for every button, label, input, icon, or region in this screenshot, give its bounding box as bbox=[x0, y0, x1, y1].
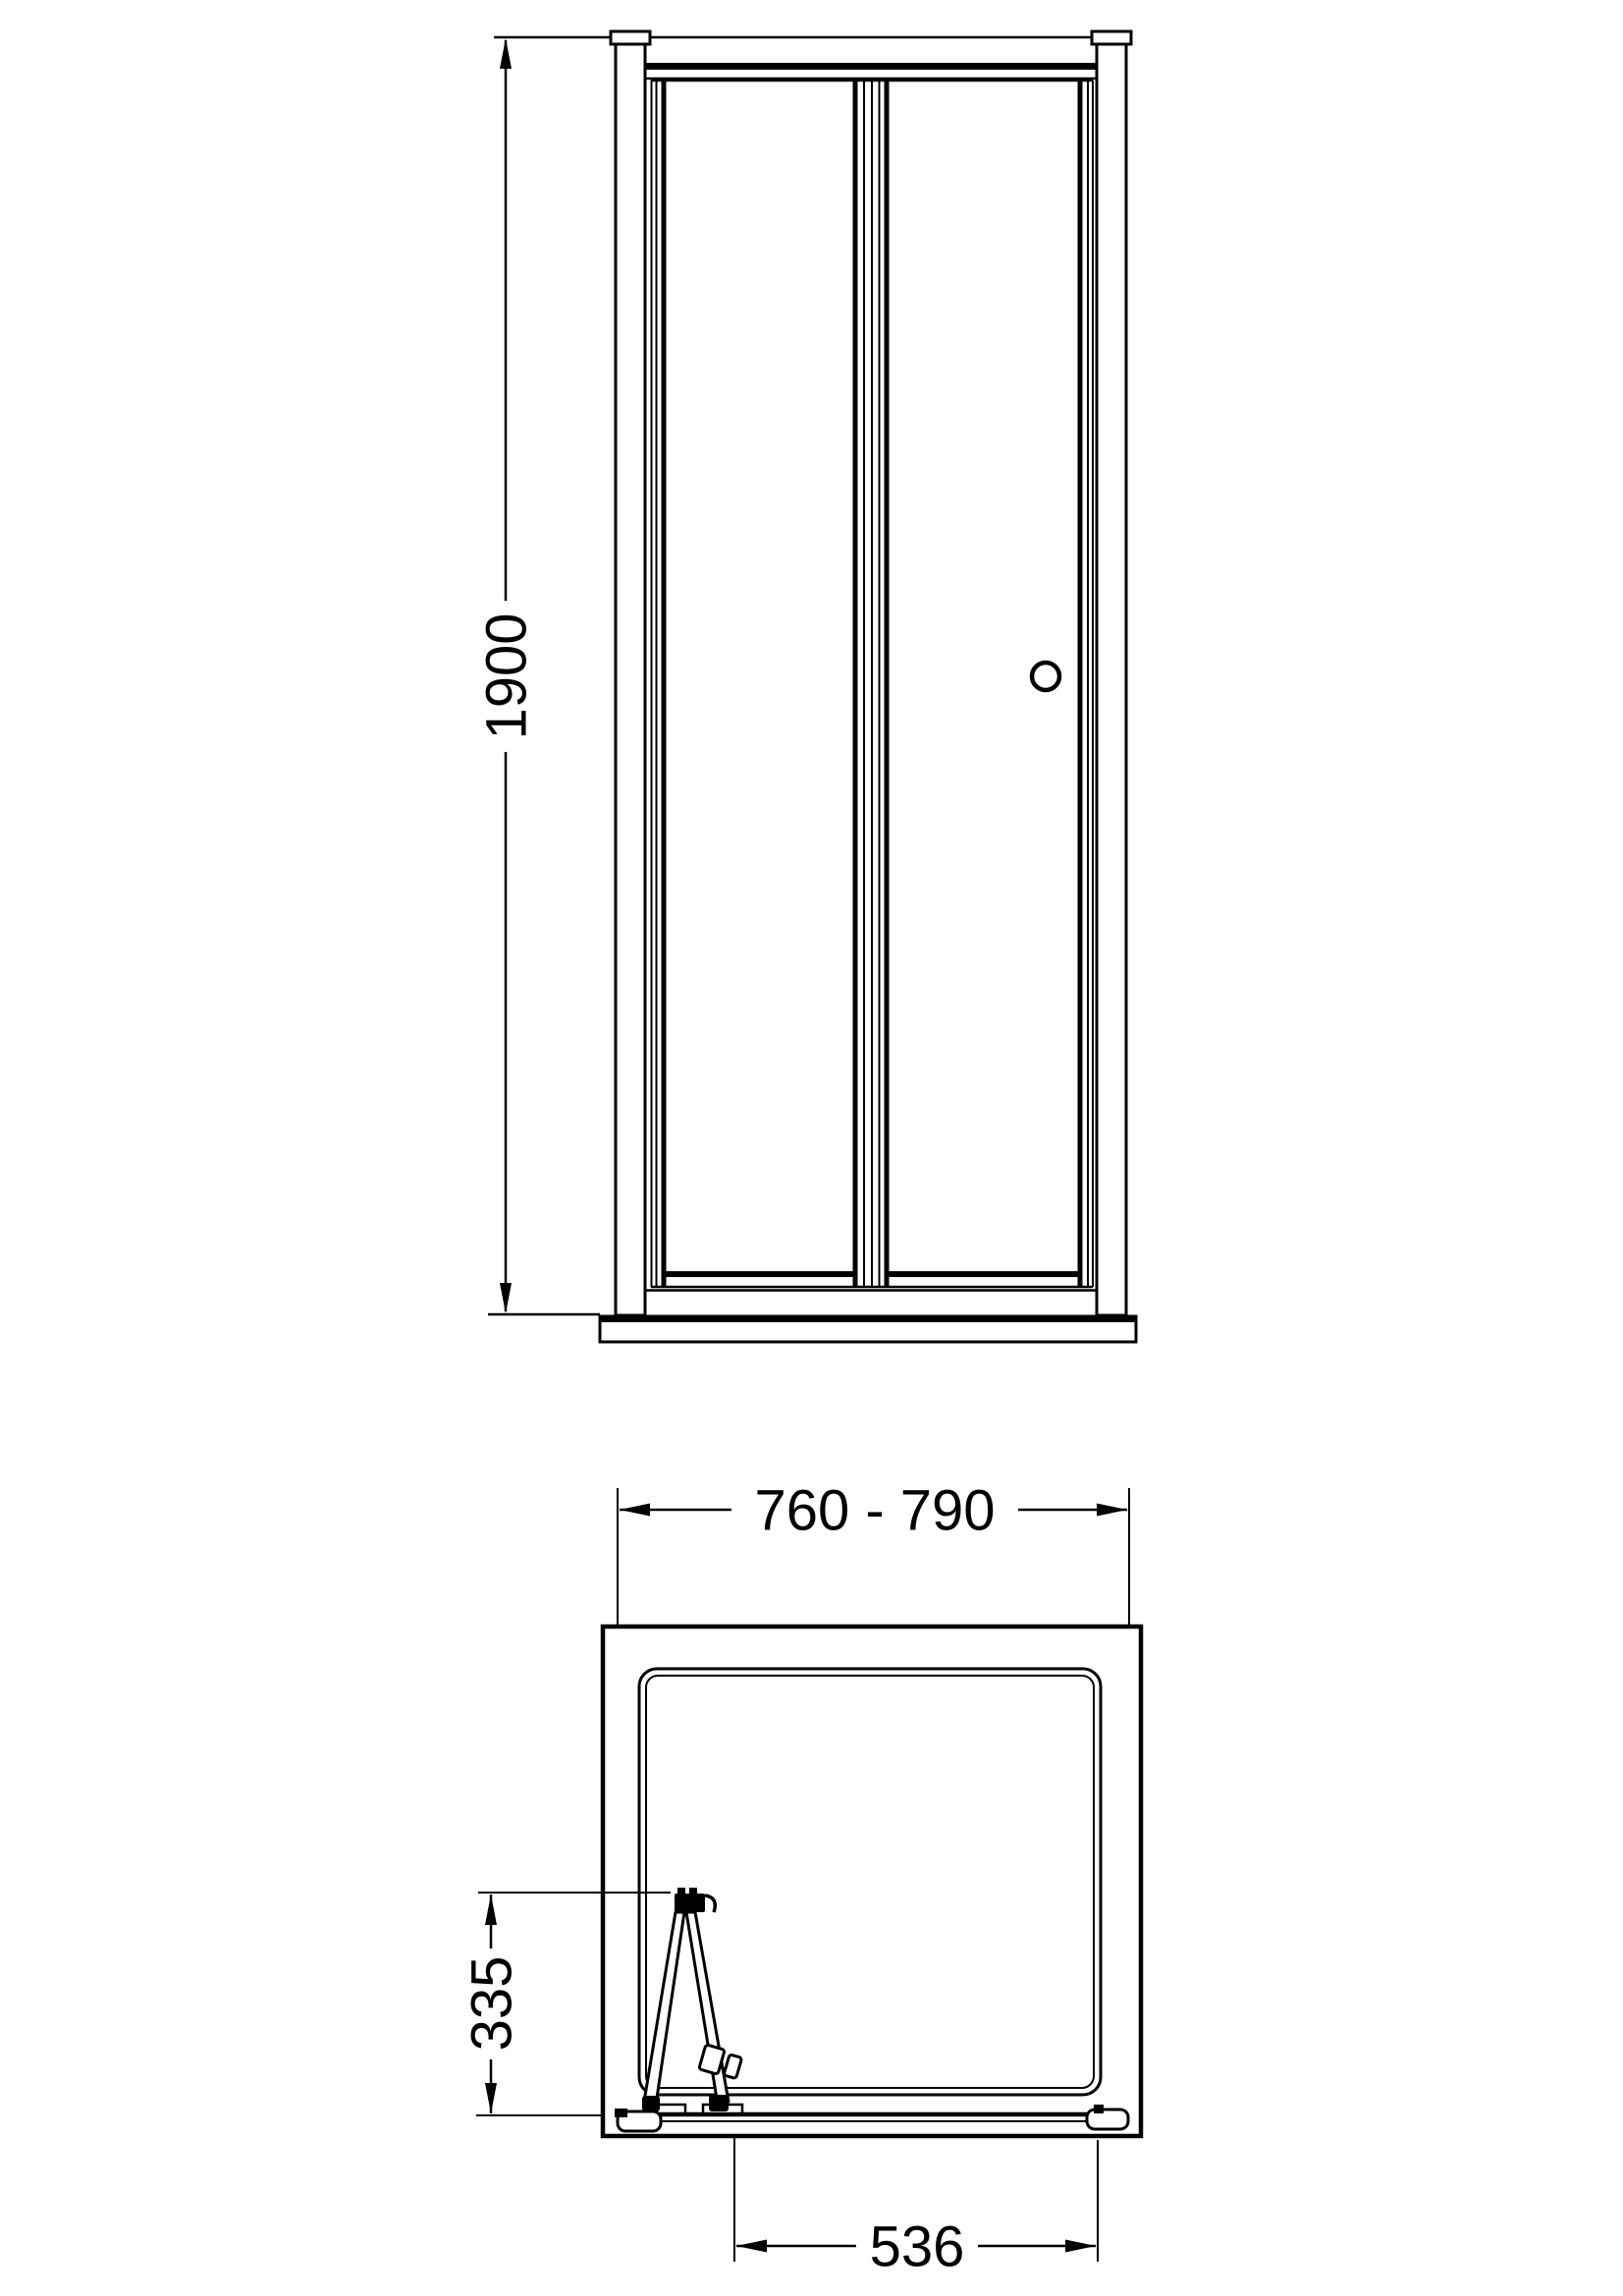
arrowhead-up-icon bbox=[485, 1895, 497, 1925]
right-pivot-block bbox=[709, 2095, 729, 2111]
left-wall-profile bbox=[616, 37, 645, 1315]
front-elevation: 1900 bbox=[474, 31, 1136, 1342]
opening-dimension: 536 bbox=[734, 2138, 1098, 2278]
door-knob-icon bbox=[1032, 663, 1059, 690]
height-dimension: 1900 bbox=[474, 37, 611, 1314]
arrowhead-right-icon bbox=[1065, 2240, 1096, 2253]
bifold-leaves bbox=[645, 80, 1097, 1291]
door-header bbox=[645, 37, 1097, 79]
left-profile-cap bbox=[611, 31, 650, 44]
left-pivot-block bbox=[642, 2096, 660, 2111]
left-bracket-stop bbox=[615, 2109, 627, 2117]
drawing-page: 1900 bbox=[0, 0, 1623, 2296]
hinge-knuckle-right bbox=[689, 1888, 697, 1896]
header-bar bbox=[645, 37, 1097, 65]
arrowhead-left-icon bbox=[736, 2240, 767, 2253]
arrowhead-right-icon bbox=[1097, 1504, 1127, 1517]
fold-hinge-body bbox=[675, 1894, 705, 1912]
right-wall-profile bbox=[1097, 37, 1126, 1315]
arrowhead-left-icon bbox=[620, 1504, 650, 1517]
shower-tray-elevation bbox=[600, 1316, 1136, 1342]
right-profile-cap bbox=[1092, 31, 1131, 44]
width-dimension-label: 760 - 790 bbox=[754, 1478, 995, 1542]
width-dimension: 760 - 790 bbox=[618, 1478, 1129, 1627]
technical-drawing: 1900 bbox=[0, 0, 1623, 2296]
plan-view: 760 - 790 bbox=[460, 1478, 1141, 2278]
projection-dimension-label: 335 bbox=[460, 1956, 523, 2052]
arrowhead-up-icon bbox=[500, 38, 512, 69]
arrowhead-down-icon bbox=[500, 1283, 512, 1313]
right-bracket-stop bbox=[1094, 2105, 1104, 2113]
right-wall-bracket bbox=[1087, 2109, 1128, 2129]
arrowhead-down-icon bbox=[485, 2083, 497, 2113]
hinge-knuckle-left bbox=[677, 1888, 685, 1896]
height-dimension-label: 1900 bbox=[474, 613, 538, 739]
opening-dimension-label: 536 bbox=[870, 2215, 965, 2278]
